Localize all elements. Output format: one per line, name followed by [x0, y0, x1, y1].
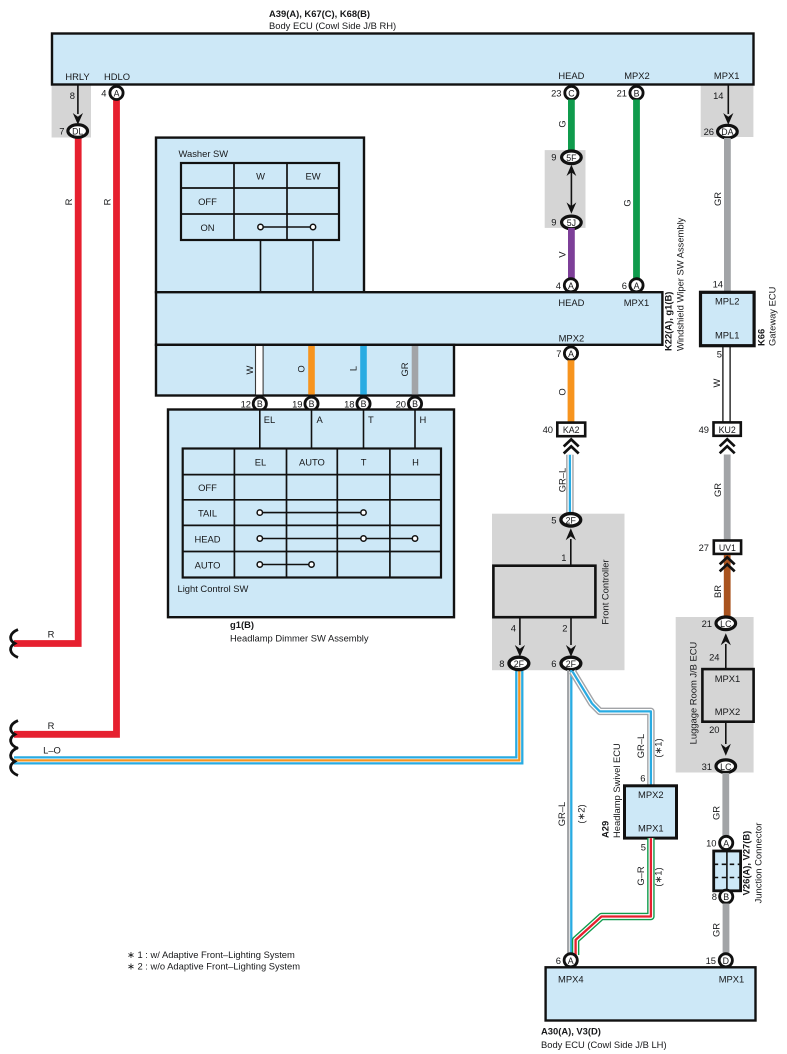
svg-text:R: R	[102, 198, 113, 205]
svg-text:AUTO: AUTO	[195, 560, 221, 571]
svg-text:B: B	[361, 399, 367, 409]
svg-text:31: 31	[702, 761, 712, 772]
svg-text:21: 21	[617, 88, 627, 99]
svg-text:H: H	[412, 457, 419, 468]
svg-text:R: R	[63, 198, 74, 205]
svg-text:15: 15	[706, 955, 716, 966]
svg-text:24: 24	[709, 652, 719, 663]
svg-text:2F: 2F	[566, 659, 577, 669]
svg-text:4: 4	[556, 280, 561, 291]
svg-text:HDLO: HDLO	[104, 71, 130, 82]
svg-text:KU2: KU2	[719, 425, 736, 435]
svg-text:27: 27	[699, 542, 709, 553]
svg-text:A: A	[634, 281, 640, 291]
svg-text:Headlamp Dimmer SW Assembly: Headlamp Dimmer SW Assembly	[230, 633, 369, 644]
svg-text:5J: 5J	[567, 218, 576, 228]
svg-text:B: B	[723, 892, 729, 902]
svg-text:6: 6	[622, 280, 627, 291]
svg-text:W: W	[244, 365, 255, 374]
svg-text:B: B	[412, 399, 418, 409]
svg-text:Gateway ECU: Gateway ECU	[767, 286, 778, 346]
svg-text:∗ 1 : w/ Adaptive Front–Lighti: ∗ 1 : w/ Adaptive Front–Lighting System	[127, 949, 295, 960]
svg-text:6: 6	[551, 658, 556, 669]
svg-text:12: 12	[241, 399, 251, 410]
svg-text:HEAD: HEAD	[558, 297, 584, 308]
svg-text:10: 10	[706, 838, 716, 849]
svg-text:5: 5	[551, 514, 556, 525]
svg-text:DA: DA	[721, 127, 733, 137]
svg-text:49: 49	[699, 424, 709, 435]
svg-text:EL: EL	[255, 457, 266, 468]
svg-text:1: 1	[561, 552, 566, 563]
svg-text:5: 5	[641, 841, 646, 852]
svg-text:Windshield Wiper SW Assembly: Windshield Wiper SW Assembly	[675, 217, 686, 351]
svg-text:8: 8	[712, 891, 717, 902]
svg-text:Headlamp Swivel ECU: Headlamp Swivel ECU	[611, 743, 622, 838]
svg-text:GR–L: GR–L	[557, 468, 568, 493]
svg-text:Luggage Room J/B ECU: Luggage Room J/B ECU	[688, 641, 699, 744]
svg-text:40: 40	[543, 424, 553, 435]
svg-text:MPL1: MPL1	[715, 330, 740, 341]
svg-text:2F: 2F	[514, 659, 525, 669]
svg-text:HEAD: HEAD	[558, 70, 584, 81]
svg-text:GR: GR	[399, 362, 410, 376]
svg-text:T: T	[368, 414, 374, 425]
svg-text:9: 9	[551, 217, 556, 228]
svg-text:∗ 2 : w/o Adaptive Front–Light: ∗ 2 : w/o Adaptive Front–Lighting System	[127, 961, 300, 972]
svg-text:DL: DL	[72, 127, 83, 137]
svg-text:8: 8	[499, 658, 504, 669]
svg-text:AUTO: AUTO	[299, 457, 325, 468]
svg-text:Body ECU (Cowl Side J/B LH): Body ECU (Cowl Side J/B LH)	[541, 1039, 667, 1050]
svg-text:20: 20	[709, 724, 719, 735]
svg-text:g1(B): g1(B)	[230, 619, 254, 630]
svg-text:K22(A), g1(B): K22(A), g1(B)	[663, 292, 674, 351]
svg-text:9: 9	[551, 151, 556, 162]
svg-text:R: R	[48, 720, 55, 731]
svg-text:C: C	[568, 88, 575, 98]
svg-text:2: 2	[562, 623, 567, 634]
svg-text:MPL2: MPL2	[715, 296, 740, 307]
svg-text:4: 4	[101, 88, 106, 99]
svg-text:7: 7	[556, 348, 561, 359]
svg-text:MPX2: MPX2	[638, 789, 664, 800]
svg-text:K66: K66	[755, 329, 766, 346]
svg-text:MPX1: MPX1	[719, 974, 745, 985]
svg-text:GR–L: GR–L	[556, 802, 567, 827]
svg-text:14: 14	[713, 279, 723, 290]
svg-text:6: 6	[556, 955, 561, 966]
svg-text:19: 19	[292, 399, 302, 410]
svg-text:4: 4	[511, 623, 516, 634]
svg-text:A: A	[568, 956, 574, 966]
svg-text:TAIL: TAIL	[198, 508, 217, 519]
svg-text:GR–L: GR–L	[635, 734, 646, 759]
svg-text:Washer SW: Washer SW	[179, 148, 229, 159]
svg-text:UV1: UV1	[719, 543, 736, 553]
svg-text:L: L	[348, 366, 359, 371]
svg-text:B: B	[309, 399, 315, 409]
svg-text:MPX2: MPX2	[559, 333, 585, 344]
svg-text:A29: A29	[600, 821, 611, 838]
svg-text:LC: LC	[720, 762, 732, 772]
svg-text:MPX1: MPX1	[638, 823, 664, 834]
svg-text:Body ECU (Cowl Side J/B RH): Body ECU (Cowl Side J/B RH)	[269, 20, 396, 31]
svg-text:L–O: L–O	[43, 745, 61, 756]
svg-text:EW: EW	[305, 171, 320, 182]
svg-text:G–R: G–R	[635, 866, 646, 886]
svg-text:8: 8	[70, 90, 75, 101]
svg-text:OFF: OFF	[198, 482, 217, 493]
svg-text:(∗2): (∗2)	[575, 804, 586, 823]
svg-text:HEAD: HEAD	[194, 534, 220, 545]
svg-text:G: G	[622, 199, 633, 206]
svg-text:R: R	[48, 629, 55, 640]
svg-text:6: 6	[640, 773, 645, 784]
svg-text:GR: GR	[711, 806, 722, 820]
svg-text:BR: BR	[712, 585, 723, 598]
svg-text:H: H	[420, 414, 427, 425]
svg-text:O: O	[557, 388, 568, 395]
svg-text:23: 23	[551, 88, 561, 99]
svg-text:Junction Connector: Junction Connector	[753, 823, 764, 904]
svg-text:W: W	[256, 171, 265, 182]
svg-text:ON: ON	[200, 222, 214, 233]
svg-text:(∗1): (∗1)	[652, 738, 663, 757]
svg-text:MPX1: MPX1	[715, 673, 741, 684]
svg-text:W: W	[711, 378, 722, 387]
svg-text:20: 20	[396, 399, 406, 410]
svg-text:LC: LC	[720, 619, 732, 629]
svg-text:GR: GR	[712, 483, 723, 497]
svg-text:A: A	[317, 414, 324, 425]
svg-text:18: 18	[344, 399, 354, 410]
svg-text:A39(A), K67(C), K68(B): A39(A), K67(C), K68(B)	[269, 8, 370, 19]
svg-text:MPX2: MPX2	[715, 706, 741, 717]
svg-text:14: 14	[713, 90, 723, 101]
svg-text:A30(A), V3(D): A30(A), V3(D)	[541, 1026, 601, 1037]
svg-text:21: 21	[702, 618, 712, 629]
svg-text:5F: 5F	[566, 153, 577, 163]
svg-text:GR: GR	[711, 923, 722, 937]
svg-text:(∗1): (∗1)	[652, 867, 663, 886]
svg-text:Front Controller: Front Controller	[599, 559, 610, 624]
svg-text:G: G	[557, 120, 568, 127]
svg-text:7: 7	[59, 126, 64, 137]
svg-text:D: D	[723, 956, 729, 966]
svg-text:A: A	[723, 838, 729, 848]
svg-text:Light Control SW: Light Control SW	[178, 583, 249, 594]
svg-text:KA2: KA2	[563, 425, 580, 435]
svg-text:MPX1: MPX1	[624, 297, 650, 308]
svg-text:A: A	[568, 349, 574, 359]
svg-text:A: A	[114, 88, 120, 98]
svg-text:O: O	[296, 365, 307, 372]
svg-text:GR: GR	[712, 192, 723, 206]
svg-text:V: V	[557, 251, 568, 258]
svg-text:26: 26	[704, 126, 714, 137]
svg-text:MPX4: MPX4	[558, 974, 584, 985]
svg-text:T: T	[361, 457, 367, 468]
svg-text:B: B	[634, 88, 640, 98]
svg-text:EL: EL	[264, 414, 275, 425]
svg-text:MPX2: MPX2	[624, 70, 650, 81]
svg-text:HRLY: HRLY	[65, 71, 90, 82]
svg-text:B: B	[257, 399, 263, 409]
svg-text:MPX1: MPX1	[714, 70, 740, 81]
svg-text:A: A	[568, 281, 574, 291]
svg-text:V26(A), V27(B): V26(A), V27(B)	[741, 831, 752, 896]
svg-text:5: 5	[717, 349, 722, 360]
svg-text:OFF: OFF	[198, 196, 217, 207]
svg-text:2F: 2F	[566, 515, 577, 525]
